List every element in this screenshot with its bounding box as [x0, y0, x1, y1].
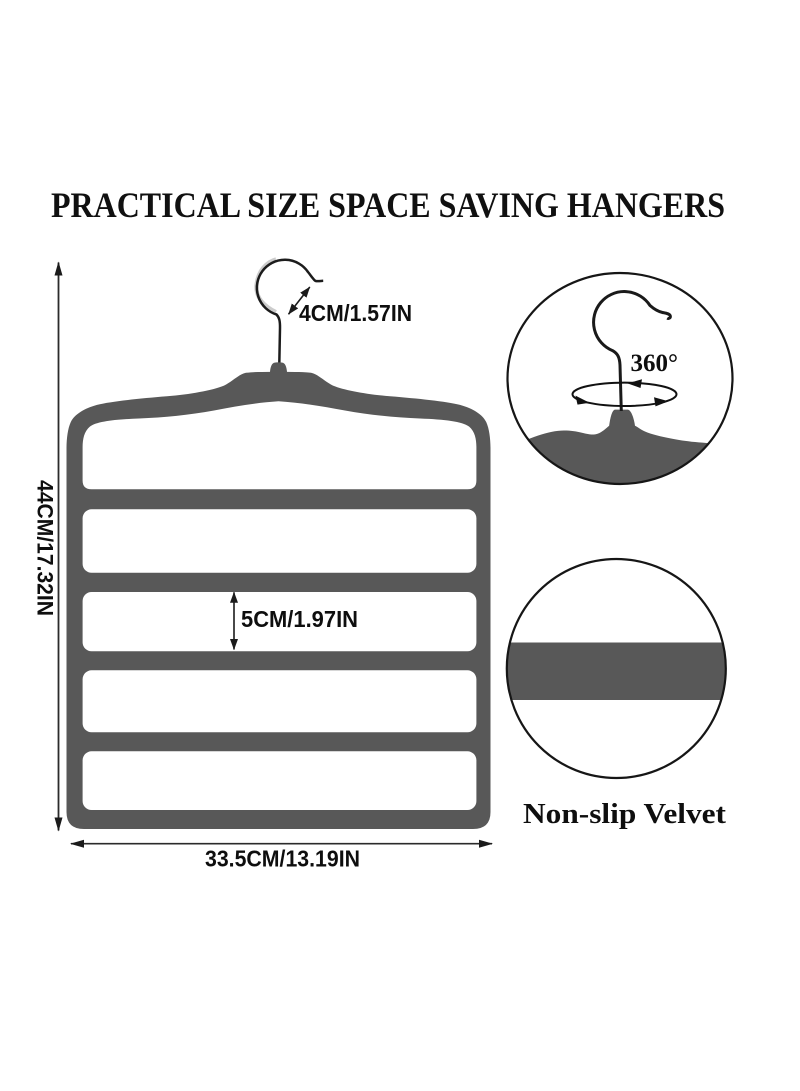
svg-text:360°: 360°: [631, 350, 679, 377]
svg-text:33.5CM/13.19IN: 33.5CM/13.19IN: [205, 846, 360, 872]
svg-text:PRACTICAL SIZE SPACE SAVING HA: PRACTICAL SIZE SPACE SAVING HANGERS: [51, 185, 725, 225]
svg-text:Non-slip Velvet: Non-slip Velvet: [523, 799, 727, 830]
svg-text:5CM/1.97IN: 5CM/1.97IN: [241, 606, 358, 632]
svg-text:4CM/1.57IN: 4CM/1.57IN: [299, 300, 412, 326]
svg-text:44CM/17.32IN: 44CM/17.32IN: [33, 480, 58, 616]
